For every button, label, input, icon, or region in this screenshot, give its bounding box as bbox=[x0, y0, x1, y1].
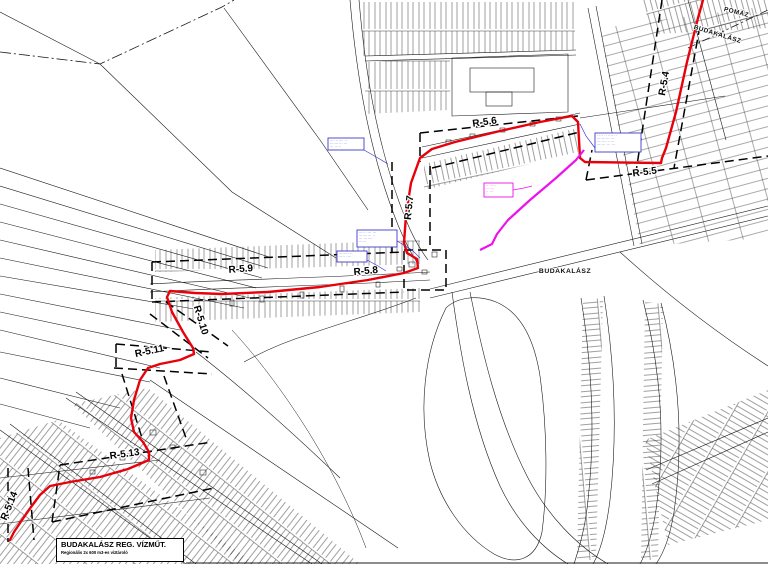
sheet-label-r-5.8: R-5.8 bbox=[353, 265, 379, 278]
title-block-subtitle: Regionális 2x 600 m3-es víztároló bbox=[61, 550, 180, 555]
title-block-title: BUDAKALÁSZ REG. VÍZMŰT. bbox=[61, 541, 180, 550]
annotation-callout-magenta-leader bbox=[513, 186, 532, 190]
sheet-label-r-5.6: R-5.6 bbox=[472, 115, 498, 129]
annotation-callout-blue-4-leader bbox=[580, 124, 595, 148]
place-label-2: BUDAKALÁSZ bbox=[539, 266, 591, 275]
base-map-linework bbox=[0, 0, 768, 564]
sheet-label-r-5.7: R-5.7 bbox=[403, 195, 417, 221]
annotation-callout-magenta-text: ·· ··· bbox=[486, 191, 494, 194]
annotation-callout-blue-4-text: ······· ··· ··· bbox=[597, 144, 616, 147]
map-canvas: R-5.4R-5.5R-5.6R-5.7R-5.8R-5.9R-5.10R-5.… bbox=[0, 0, 768, 564]
annotation-callout-blue-1-leader bbox=[364, 150, 388, 164]
annotation-callout-blue-3-text: ····· ···· bbox=[339, 256, 352, 259]
sheet-label-r-5.9: R-5.9 bbox=[228, 263, 254, 276]
annotation-callout-blue-1-text: ··· ····· bbox=[330, 146, 341, 149]
map-page: R-5.4R-5.5R-5.6R-5.7R-5.8R-5.9R-5.10R-5.… bbox=[0, 0, 768, 564]
annotation-callout-blue-2-text: ······ bbox=[359, 241, 367, 244]
title-block: BUDAKALÁSZ REG. VÍZMŰT. Regionális 2x 60… bbox=[56, 538, 184, 562]
